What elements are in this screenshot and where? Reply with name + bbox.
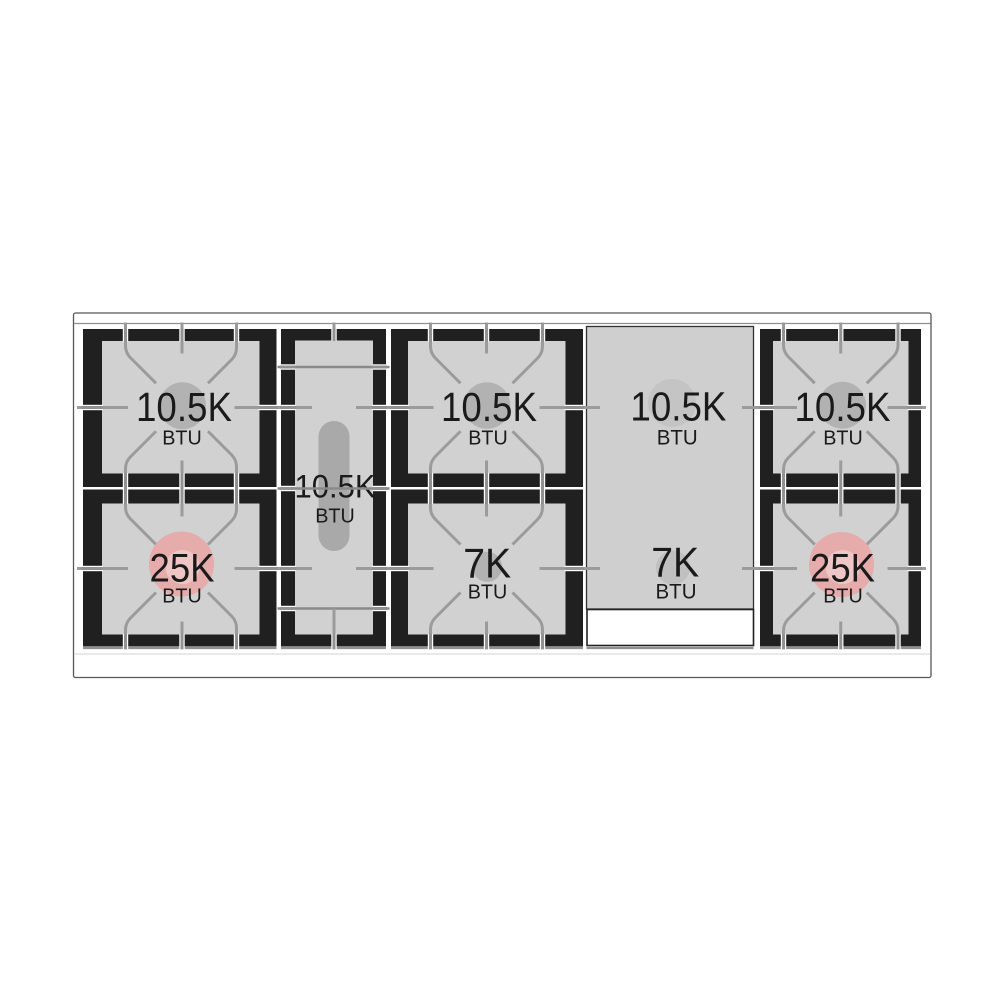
svg-text:25K: 25K [810, 546, 875, 590]
svg-text:BTU: BTU [315, 505, 355, 527]
svg-text:7K: 7K [463, 539, 511, 586]
svg-text:10.5K: 10.5K [795, 384, 891, 430]
svg-text:25K: 25K [150, 546, 215, 590]
svg-text:BTU: BTU [823, 585, 863, 607]
svg-text:10.5K: 10.5K [630, 383, 726, 429]
svg-text:BTU: BTU [468, 427, 508, 449]
svg-text:BTU: BTU [162, 585, 202, 607]
svg-text:10.5K: 10.5K [136, 384, 232, 430]
svg-text:10.5K: 10.5K [441, 384, 537, 430]
svg-text:BTU: BTU [656, 581, 697, 604]
svg-text:BTU: BTU [657, 426, 698, 449]
svg-text:BTU: BTU [162, 427, 202, 449]
svg-text:7K: 7K [651, 538, 699, 585]
svg-text:10.5K: 10.5K [295, 469, 376, 505]
svg-text:BTU: BTU [823, 427, 863, 449]
svg-text:BTU: BTU [468, 581, 508, 603]
